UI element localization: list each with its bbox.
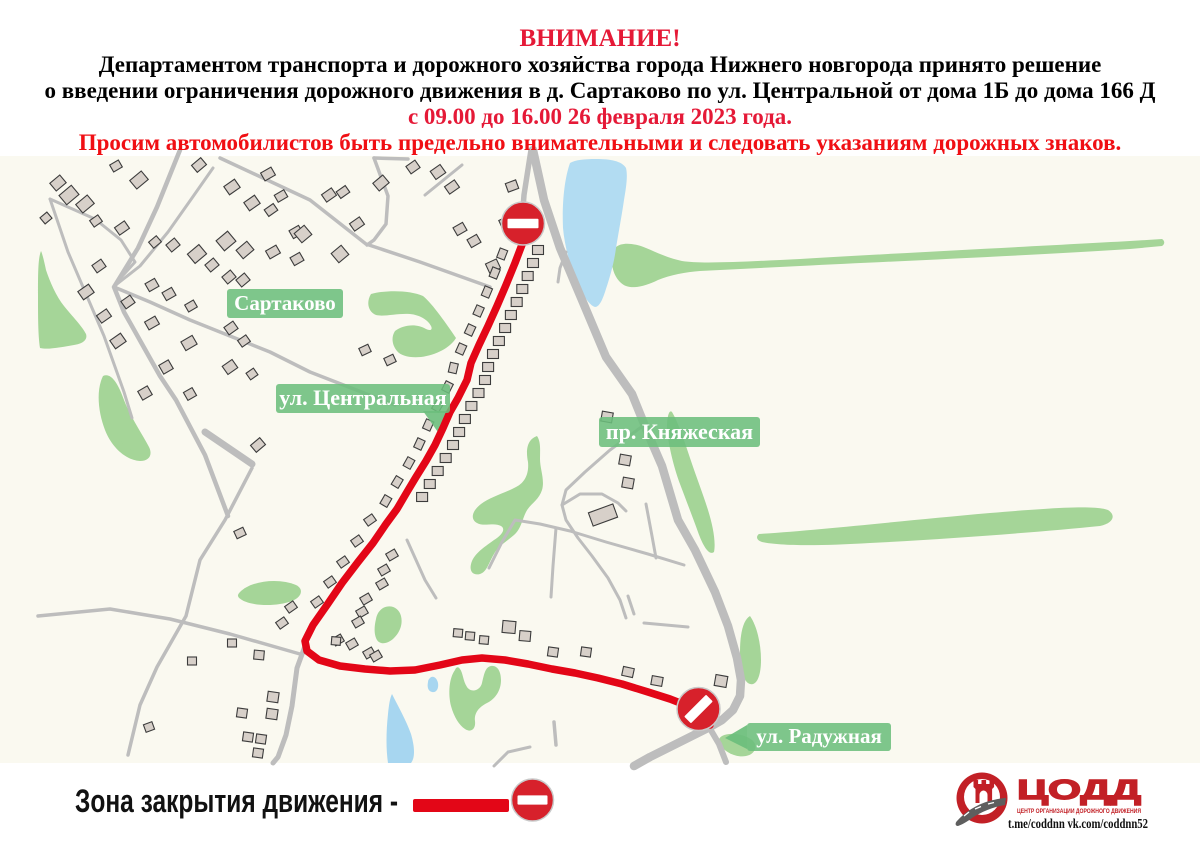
svg-text:Просим автомобилистов быть пре: Просим автомобилистов быть предельно вни… [79,130,1122,155]
svg-text:ВНИМАНИЕ!: ВНИМАНИЕ! [519,25,680,52]
svg-text:Департаментом транспорта и дор: Департаментом транспорта и дорожного хоз… [99,52,1102,77]
svg-text:t.me/coddnn vk.com/coddnn52: t.me/coddnn vk.com/coddnn52 [1008,816,1148,831]
svg-text:ЦЕНТР ОРГАНИЗАЦИИ ДОРОЖНОГО ДВ: ЦЕНТР ОРГАНИЗАЦИИ ДОРОЖНОГО ДВИЖЕНИЯ [1017,808,1141,815]
svg-text:ул. Центральная: ул. Центральная [279,385,447,410]
svg-text:ЦОДД: ЦОДД [1017,774,1141,805]
svg-text:ул. Радужная: ул. Радужная [756,724,882,748]
svg-text:Зона закрытия движения -: Зона закрытия движения - [75,783,398,819]
svg-text:Сартаково: Сартаково [234,291,336,315]
svg-text:о введении ограничения дорожно: о введении ограничения дорожного движени… [45,78,1156,103]
svg-text:пр. Княжеская: пр. Княжеская [606,419,753,444]
svg-text:с 09.00 до 16.00 26 февраля 20: с 09.00 до 16.00 26 февраля 2023 года. [408,104,792,129]
